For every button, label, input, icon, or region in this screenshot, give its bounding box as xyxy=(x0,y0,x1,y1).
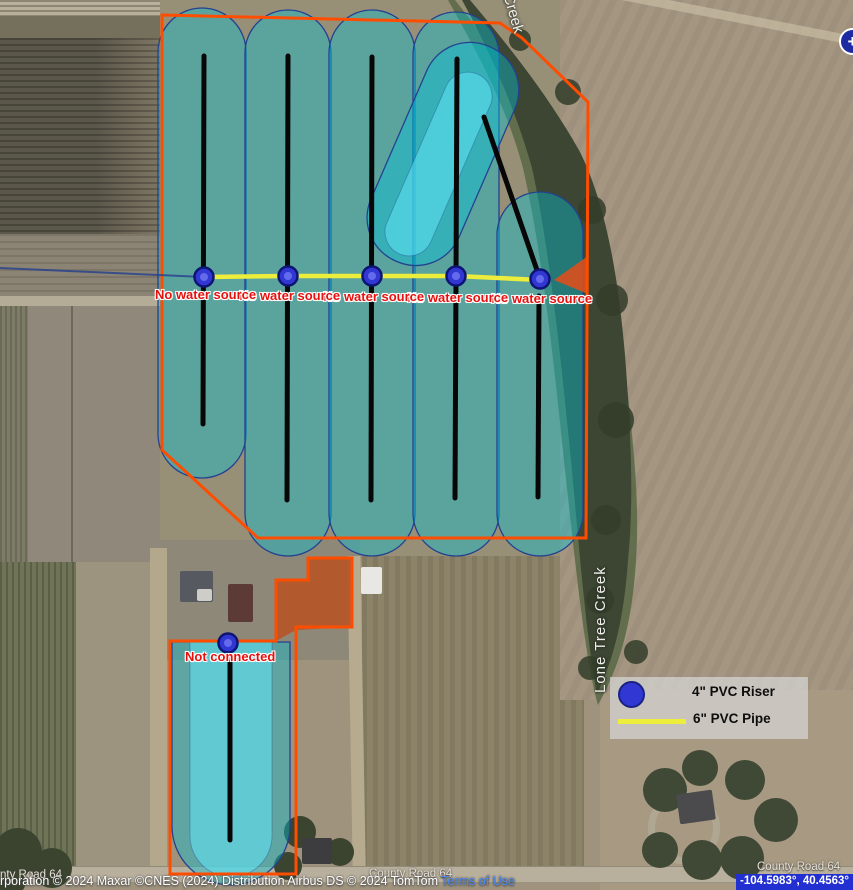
terms-of-use-link[interactable]: Terms of Use xyxy=(441,874,515,888)
no-water-label-1: No water source xyxy=(155,287,256,302)
legend-pipe-label: 6" PVC Pipe xyxy=(693,711,771,726)
irrigation-overlay xyxy=(0,0,853,890)
creek-label-right: Lone Tree Creek xyxy=(592,558,609,693)
road-label-right: County Road 64 xyxy=(757,861,840,873)
lateral-line-1[interactable] xyxy=(203,56,204,424)
coordinates-readout: -104.5983°, 40.4563° xyxy=(736,874,853,890)
riser-circle-icon xyxy=(618,681,645,708)
pipe-line-icon xyxy=(618,719,686,724)
satellite-map-canvas[interactable]: No water source No water source No water… xyxy=(0,0,853,890)
legend: 4" PVC Riser 6" PVC Pipe xyxy=(610,677,808,739)
legend-riser-label: 4" PVC Riser xyxy=(692,684,775,699)
bare-field-brown xyxy=(276,558,352,641)
not-connected-label: Not connected xyxy=(185,649,275,664)
attribution-text: rporation © 2024 Maxar ©CNES (2024) Dist… xyxy=(0,874,441,888)
lateral-line-5[interactable] xyxy=(538,296,539,497)
map-attribution: rporation © 2024 Maxar ©CNES (2024) Dist… xyxy=(0,874,515,888)
